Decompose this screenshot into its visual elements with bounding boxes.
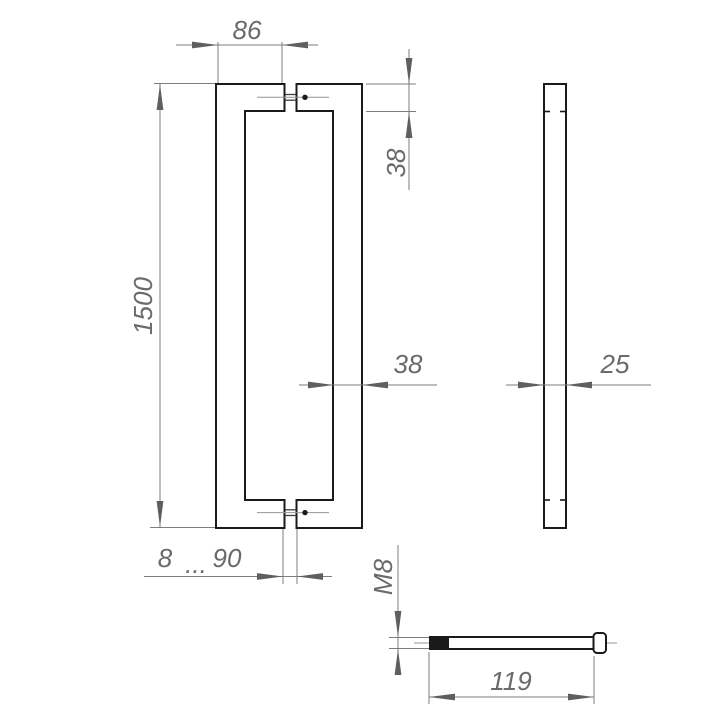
dim-m8-label: M8 xyxy=(368,558,398,595)
dim-8-label: 8 xyxy=(158,543,173,573)
handle-inner-opening xyxy=(245,111,333,500)
side-view xyxy=(544,84,566,528)
dim-m8: M8 xyxy=(368,545,429,675)
dim-38-bar: 38 xyxy=(366,49,416,190)
dim-38-tube-label: 38 xyxy=(394,349,423,379)
pull-handle-drawing: 86 38 1500 38 25 8 .. xyxy=(0,0,709,709)
bolt-head xyxy=(594,633,607,653)
bolt-shaft xyxy=(430,637,595,649)
dim-1500-label: 1500 xyxy=(128,277,158,335)
dim-86-label: 86 xyxy=(233,15,262,45)
dim-38-bar-label: 38 xyxy=(381,148,411,177)
dim-119: 119 xyxy=(429,652,594,704)
bolt-view xyxy=(414,633,617,653)
bottom-screw-dot xyxy=(302,510,307,515)
dim-1500: 1500 xyxy=(128,84,215,528)
dim-119-label: 119 xyxy=(490,666,531,696)
dim-25: 25 xyxy=(506,349,651,388)
top-screw-dot xyxy=(302,95,307,100)
bolt-thread xyxy=(430,637,449,649)
dim-dots-label: ... xyxy=(185,549,207,579)
side-profile-outline xyxy=(544,84,566,528)
dim-8-90: 8 ... 90 xyxy=(144,529,332,584)
technical-drawing-canvas: 86 38 1500 38 25 8 .. xyxy=(0,0,709,709)
front-view xyxy=(216,82,362,530)
dim-25-label: 25 xyxy=(600,349,630,379)
dim-90-label: 90 xyxy=(213,543,242,573)
dim-86: 86 xyxy=(176,15,318,83)
